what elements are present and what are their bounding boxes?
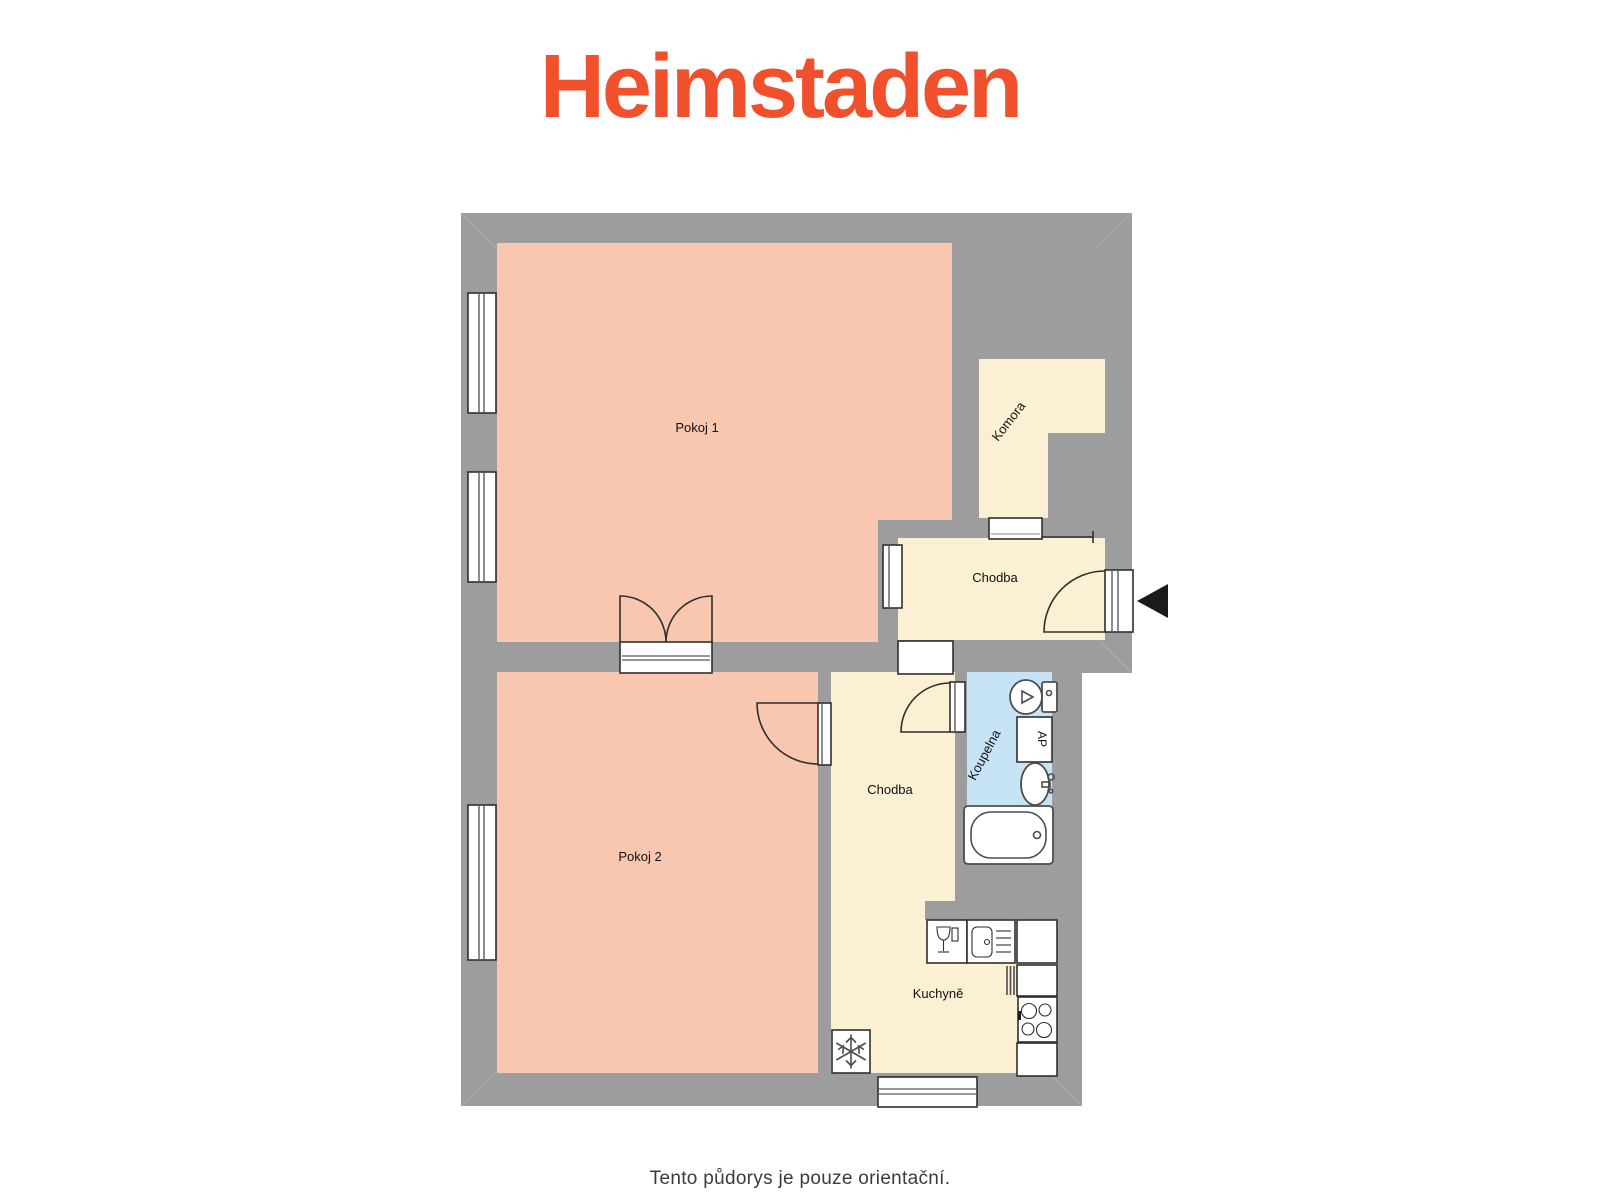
label-kuchyne: Kuchyně xyxy=(913,986,964,1001)
door-opening-chodba xyxy=(898,641,953,674)
window-icon-pokoj1-chodba xyxy=(883,545,902,608)
glass-cabinet-icon xyxy=(927,920,967,963)
label-chodba-upper: Chodba xyxy=(972,570,1018,585)
label-chodba-lower: Chodba xyxy=(867,782,913,797)
washing-machine: AP xyxy=(1017,717,1052,762)
kitchen-sink-icon xyxy=(967,920,1015,963)
label-pokoj-1: Pokoj 1 xyxy=(675,420,718,435)
window-icon-pokoj1-upper xyxy=(468,293,496,413)
toilet-icon xyxy=(1010,680,1057,714)
counter-top-right xyxy=(1017,920,1057,963)
washing-machine-label: AP xyxy=(1035,731,1049,747)
counter-right-mid xyxy=(1017,965,1057,996)
counter-bottom-right xyxy=(1017,1043,1057,1076)
bathtub-icon xyxy=(964,806,1053,864)
stove-icon xyxy=(1018,997,1057,1042)
floor-plan: AP xyxy=(0,0,1600,1200)
disclaimer-text: Tento půdorys je pouze orientační. xyxy=(0,1168,1600,1190)
room-chodba-upper xyxy=(898,538,1105,640)
window-icon-pokoj1-lower xyxy=(468,472,496,582)
fridge-freezer xyxy=(832,1030,870,1073)
window-icon-pokoj2 xyxy=(468,805,496,960)
page: { "logo": { "text": "Heimstaden" }, "cap… xyxy=(0,0,1600,1200)
window-icon-kuchyne xyxy=(878,1077,977,1107)
entrance-arrow-icon xyxy=(1137,584,1168,618)
label-pokoj-2: Pokoj 2 xyxy=(618,849,661,864)
room-pokoj-2 xyxy=(497,672,818,1073)
